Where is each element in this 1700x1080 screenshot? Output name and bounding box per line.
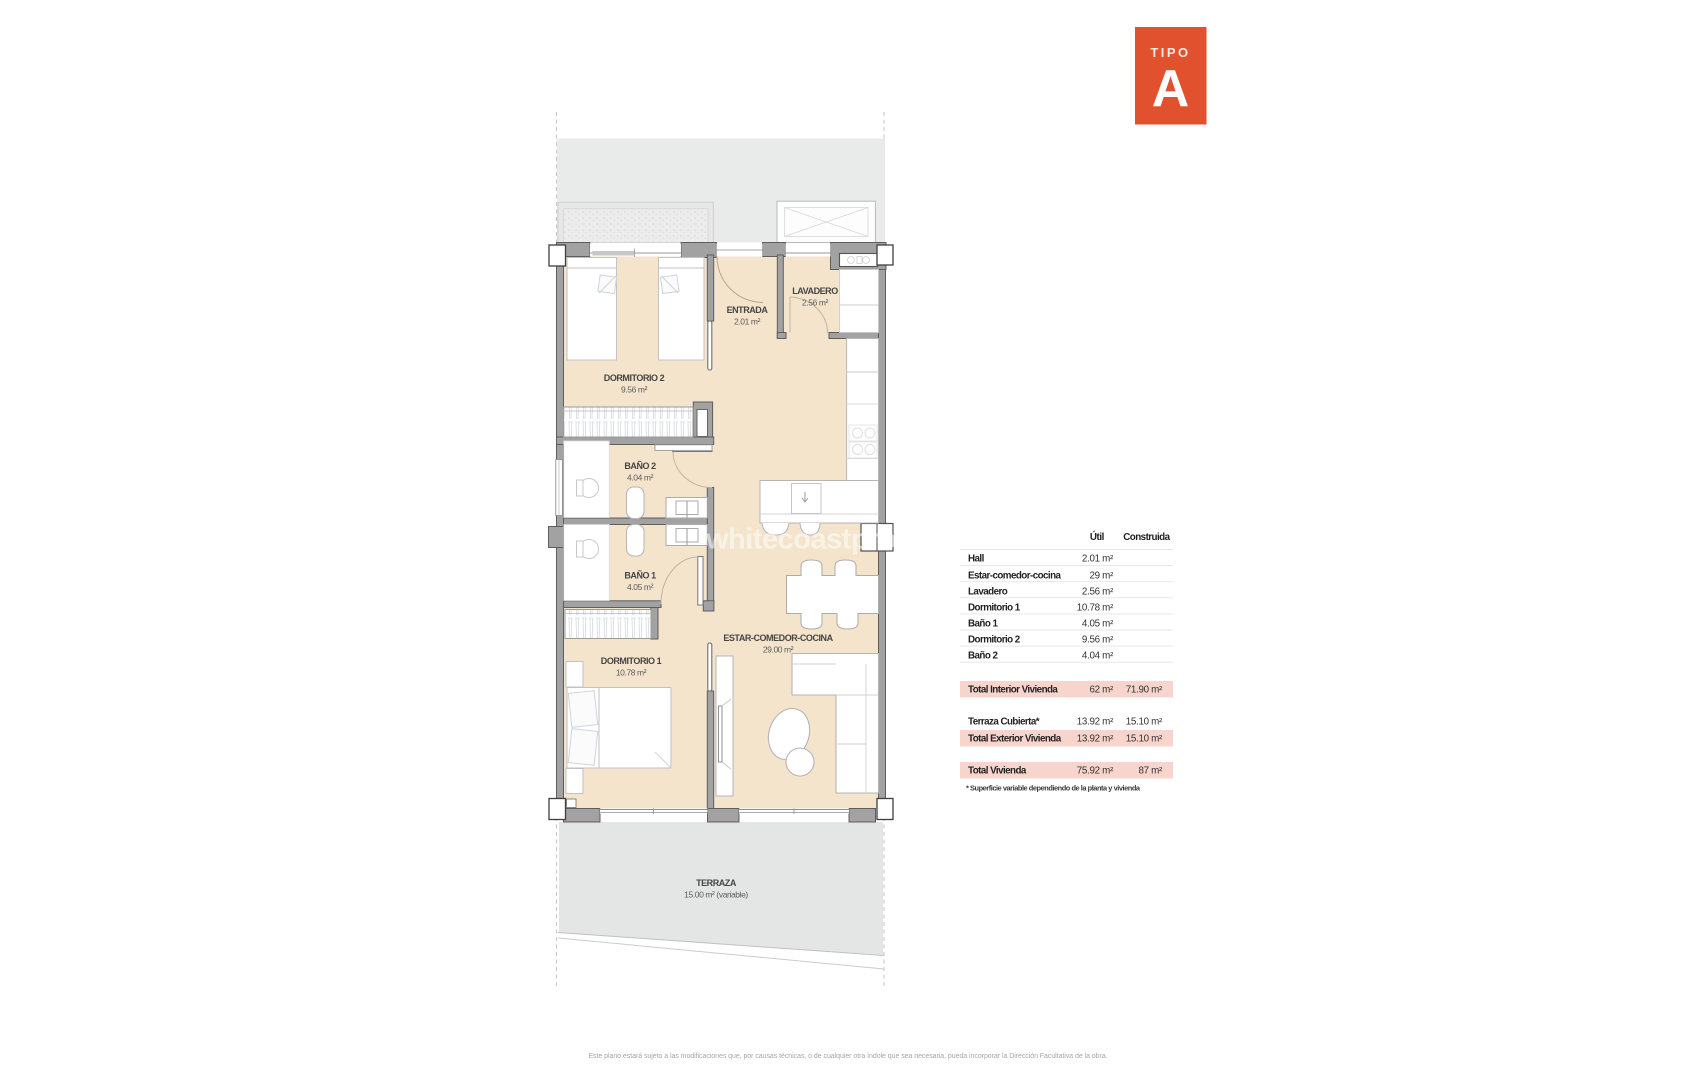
svg-text:62 m²: 62 m²: [1089, 685, 1114, 696]
svg-text:ENTRADA: ENTRADA: [727, 305, 769, 315]
svg-text:2.56 m²: 2.56 m²: [1082, 587, 1114, 598]
svg-text:13.92 m²: 13.92 m²: [1077, 717, 1114, 728]
svg-text:87 m²: 87 m²: [1138, 766, 1163, 777]
svg-text:Hall: Hall: [968, 554, 985, 565]
svg-text:13.92 m²: 13.92 m²: [1077, 734, 1114, 745]
svg-text:DORMITORIO 1: DORMITORIO 1: [601, 656, 662, 666]
svg-text:75.92 m²: 75.92 m²: [1077, 766, 1114, 777]
svg-text:29.00 m²: 29.00 m²: [763, 645, 794, 655]
svg-text:Total Interior Vivienda: Total Interior Vivienda: [968, 685, 1058, 696]
svg-text:2.01 m²: 2.01 m²: [1082, 554, 1114, 565]
svg-text:LAVADERO: LAVADERO: [792, 286, 838, 296]
svg-text:* Superficie variable dependie: * Superficie variable dependiendo de la …: [966, 784, 1141, 793]
svg-text:Estar-comedor-cocina: Estar-comedor-cocina: [968, 571, 1062, 582]
svg-text:4.04 m²: 4.04 m²: [627, 473, 654, 483]
svg-text:10.78 m²: 10.78 m²: [1077, 603, 1114, 614]
svg-text:TIPO: TIPO: [1150, 45, 1190, 60]
svg-text:15.00 m² (variable): 15.00 m² (variable): [684, 890, 748, 900]
svg-text:Dormitorio 1: Dormitorio 1: [968, 603, 1021, 614]
svg-text:BAÑO 2: BAÑO 2: [624, 461, 656, 471]
svg-text:15.10 m²: 15.10 m²: [1126, 734, 1163, 745]
svg-text:Este plano estará sujeto a las: Este plano estará sujeto a las modificac…: [588, 1053, 1107, 1060]
svg-text:Lavadero: Lavadero: [968, 587, 1008, 598]
svg-text:whitecoastprope: whitecoastprope: [705, 524, 929, 556]
svg-text:BAÑO 1: BAÑO 1: [624, 571, 656, 581]
svg-text:Construida: Construida: [1123, 532, 1170, 543]
svg-text:2.01 m²: 2.01 m²: [734, 317, 761, 327]
svg-text:A: A: [1152, 60, 1190, 118]
svg-text:Total Vivienda: Total Vivienda: [968, 766, 1027, 777]
svg-text:71.90 m²: 71.90 m²: [1126, 685, 1163, 696]
svg-text:9.56 m²: 9.56 m²: [1082, 635, 1114, 646]
svg-text:DORMITORIO 2: DORMITORIO 2: [604, 373, 665, 383]
svg-text:Total Exterior Vivienda: Total Exterior Vivienda: [968, 734, 1062, 745]
svg-text:4.05 m²: 4.05 m²: [627, 582, 654, 592]
svg-text:4.05 m²: 4.05 m²: [1082, 619, 1114, 630]
svg-text:29 m²: 29 m²: [1089, 571, 1114, 582]
svg-text:2.56 m²: 2.56 m²: [802, 298, 829, 308]
svg-text:4.04 m²: 4.04 m²: [1082, 651, 1114, 662]
svg-text:ESTAR-COMEDOR-COCINA: ESTAR-COMEDOR-COCINA: [723, 633, 833, 643]
svg-text:Baño 1: Baño 1: [968, 619, 998, 630]
svg-text:TERRAZA: TERRAZA: [696, 878, 737, 888]
svg-text:15.10 m²: 15.10 m²: [1126, 717, 1163, 728]
svg-text:9.56 m²: 9.56 m²: [621, 385, 648, 395]
svg-text:Baño 2: Baño 2: [968, 651, 998, 662]
svg-text:10.78 m²: 10.78 m²: [616, 668, 647, 678]
svg-text:Terraza Cubierta*: Terraza Cubierta*: [968, 717, 1040, 728]
svg-text:Dormitorio 2: Dormitorio 2: [968, 635, 1021, 646]
svg-text:Útil: Útil: [1090, 531, 1105, 543]
